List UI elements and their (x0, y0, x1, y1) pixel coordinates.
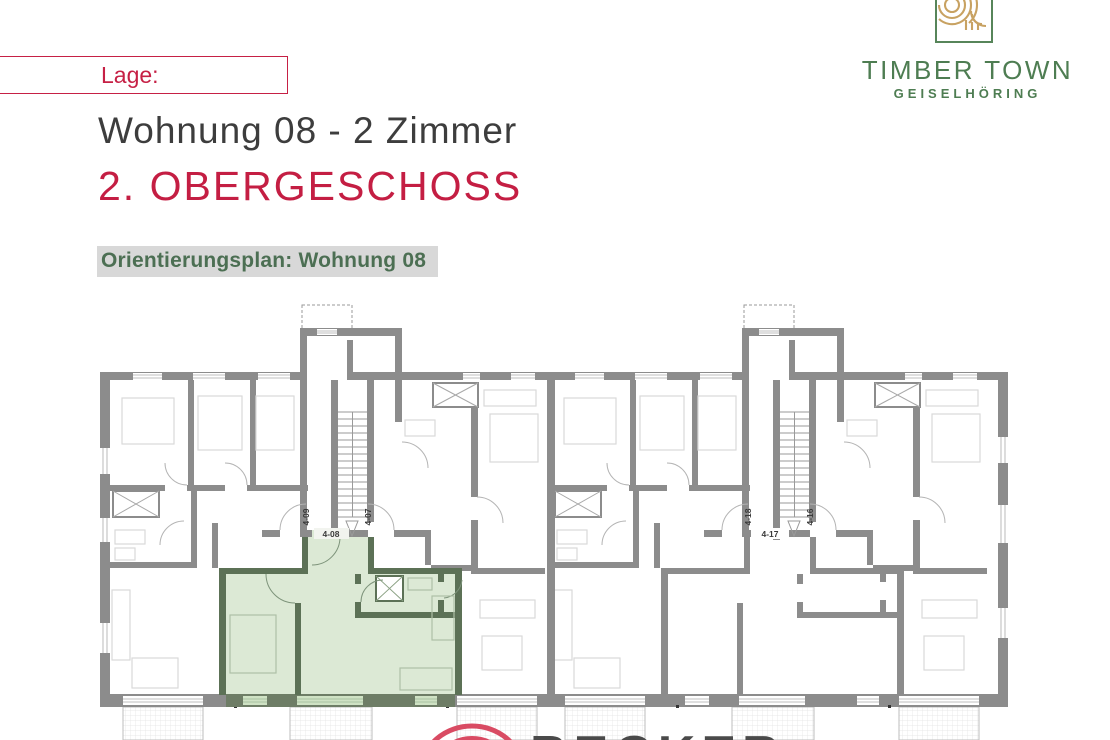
brochure-page: Lage: Wohnung 08 - 2 Zimmer 2. OBERGESCH… (0, 0, 1110, 740)
floor-plan: 4-09 4-07 4-08 4-18 4-16 4-17 BECKER (0, 300, 1110, 740)
floor-subtitle: 2. OBERGESCHOSS (98, 163, 522, 210)
orientation-plan-label: Orientierungsplan: Wohnung 08 (97, 246, 438, 277)
lage-box: Lage: (0, 56, 288, 94)
unit-label-4-16: 4-16 (805, 508, 815, 525)
wood-grain-icon (922, 0, 1002, 46)
watermark-text: BECKER (530, 726, 786, 740)
logo-city: GEISELHÖRING (860, 86, 1075, 101)
page-title: Wohnung 08 - 2 Zimmer (98, 110, 517, 152)
unit-label-4-09: 4-09 (301, 508, 311, 525)
timber-town-logo: TIMBER TOWN GEISELHÖRING (860, 0, 1075, 110)
unit-label-4-17: 4-17 (761, 529, 778, 539)
unit-label-4-07: 4-07 (363, 508, 373, 525)
logo-name: TIMBER TOWN (860, 55, 1075, 86)
lage-label: Lage: (101, 62, 159, 89)
unit-label-4-08: 4-08 (322, 529, 339, 539)
unit-label-4-18: 4-18 (743, 508, 753, 525)
